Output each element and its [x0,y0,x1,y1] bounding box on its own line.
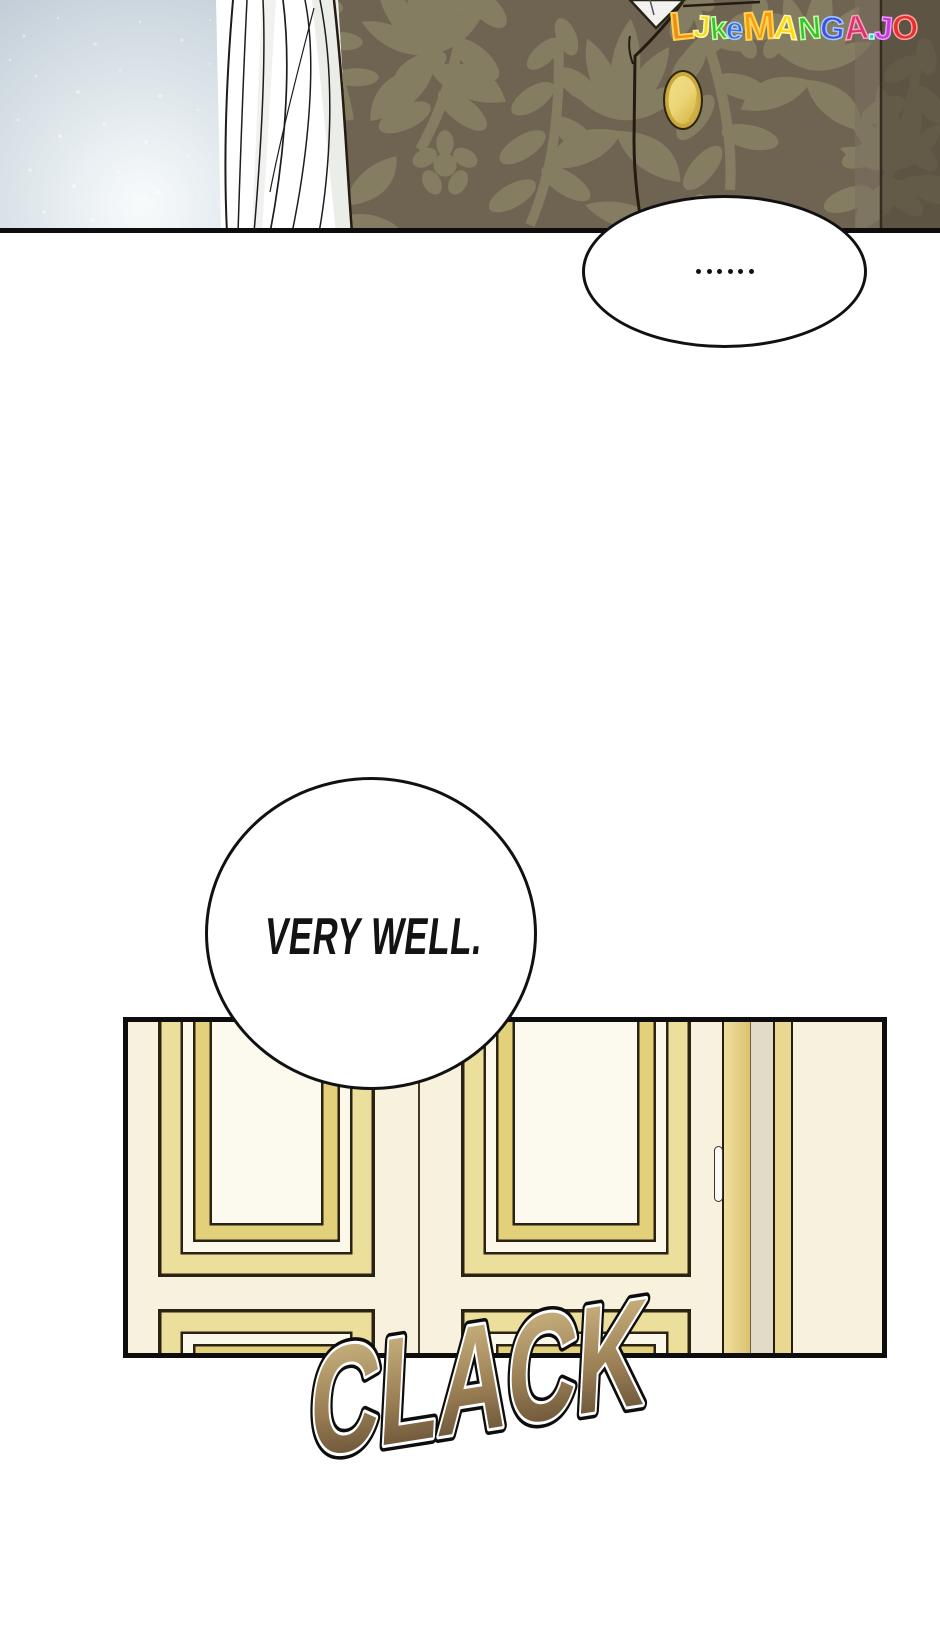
svg-text:CLACK: CLACK [306,1270,651,1490]
svg-text:VERY WELL.: VERY WELL. [262,908,487,965]
